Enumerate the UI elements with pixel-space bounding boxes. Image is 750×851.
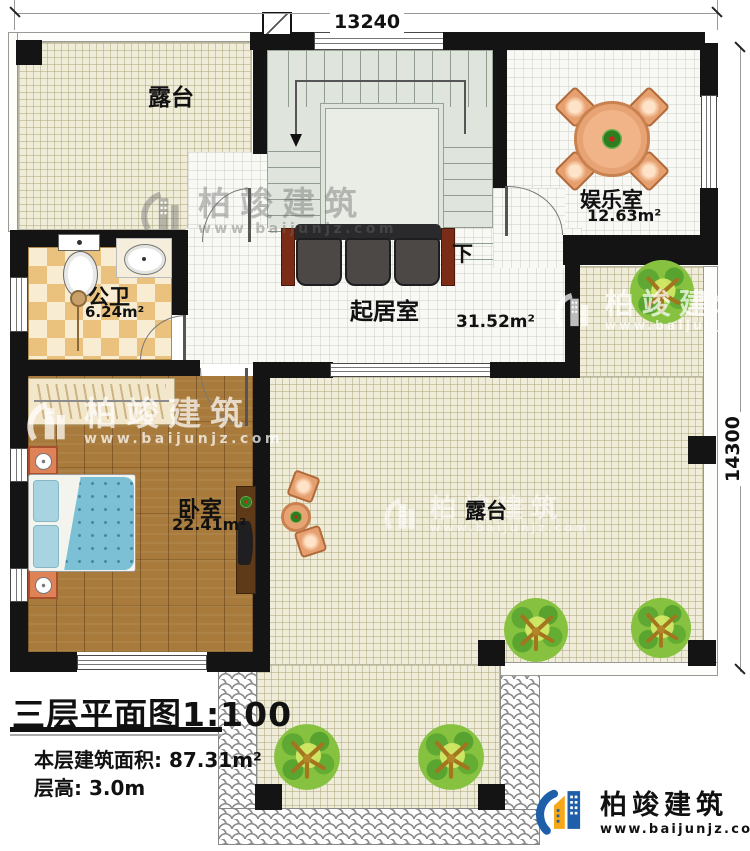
tree-icon bbox=[628, 258, 696, 326]
closet-rod bbox=[34, 400, 169, 402]
stair-guide-line bbox=[295, 80, 297, 134]
bed-pillow bbox=[33, 525, 59, 568]
bed-pillow bbox=[33, 480, 59, 522]
area-bedroom: 22.41m² bbox=[172, 515, 246, 534]
stair-risers-top bbox=[288, 51, 493, 107]
dimension-top-value: 13240 bbox=[330, 11, 404, 33]
label-terrace-top-left: 露台 bbox=[148, 78, 194, 112]
wall-bathroom-bottom bbox=[10, 360, 200, 376]
window-bedroom-bottom bbox=[77, 655, 207, 670]
nightstand bbox=[28, 570, 58, 599]
window-living-slider bbox=[330, 363, 492, 377]
sofa-cushion bbox=[394, 238, 440, 286]
door-leaf-entertainment bbox=[505, 186, 508, 236]
nightstand bbox=[28, 446, 58, 475]
window-entertainment-right bbox=[701, 95, 717, 190]
window-bathroom-left bbox=[10, 277, 28, 332]
wall-right-mid bbox=[700, 188, 718, 238]
wall-bedroom-left-a bbox=[10, 374, 28, 448]
company-logo: 柏竣建筑 www.baijunjz.com bbox=[536, 782, 750, 838]
railing-terrace-bottom bbox=[500, 662, 718, 676]
railing-terrace-right bbox=[703, 266, 718, 672]
railing-terrace-top bbox=[8, 32, 252, 42]
floor-plan: 柏竣建筑 www.baijunjz.com 柏竣建筑 www.baijunjz.… bbox=[0, 0, 750, 851]
window-bedroom-left-2 bbox=[10, 568, 28, 602]
tree-icon bbox=[628, 596, 694, 660]
sofa-side-table bbox=[281, 228, 295, 286]
door-leaf-terrace bbox=[248, 188, 251, 242]
area-bathroom: 6.24m² bbox=[85, 303, 144, 321]
sofa-cushion bbox=[345, 238, 391, 286]
floor-area-text: 本层建筑面积: 87.31m² bbox=[34, 744, 262, 773]
wall-right-upper bbox=[700, 43, 718, 97]
wall-bathroom-left-a bbox=[10, 247, 28, 277]
wall-bedroom-bottom-a bbox=[10, 652, 77, 672]
label-living: 起居室 bbox=[350, 292, 419, 326]
column bbox=[478, 640, 505, 666]
roof-tile-strip-right bbox=[500, 668, 540, 810]
dimension-right-value: 14300 bbox=[722, 412, 744, 486]
stair-guide-line bbox=[296, 80, 466, 82]
column bbox=[688, 436, 716, 464]
area-entertainment: 12.63m² bbox=[587, 206, 661, 225]
company-name: 柏竣建筑 bbox=[600, 783, 750, 822]
bed-sheet-fold bbox=[60, 477, 92, 570]
table-plant-icon bbox=[290, 511, 302, 523]
stair-landing bbox=[320, 103, 444, 235]
company-logo-icon bbox=[536, 782, 590, 838]
wall-living-terrace-divider bbox=[565, 265, 580, 378]
door-leaf-bedroom bbox=[245, 368, 248, 426]
column bbox=[16, 40, 42, 65]
stair-risers-left bbox=[268, 146, 320, 232]
wall-living-bottom-left bbox=[253, 362, 333, 378]
wall-top-right bbox=[443, 32, 705, 50]
label-stairs-down: 下 bbox=[452, 238, 473, 268]
floor-drain-stem bbox=[77, 307, 79, 351]
stair-down-arrow-icon bbox=[290, 134, 302, 147]
toilet-button bbox=[77, 240, 82, 245]
door-leaf-bathroom bbox=[183, 315, 186, 360]
dimension-line-right bbox=[740, 48, 741, 672]
wall-bedroom-left-b bbox=[10, 482, 28, 568]
company-website: www.baijunjz.com bbox=[600, 822, 750, 837]
dimension-tick bbox=[9, 6, 20, 17]
sink-drain bbox=[142, 257, 146, 261]
title-underline-thin bbox=[10, 734, 222, 736]
table-plant-icon bbox=[602, 129, 622, 149]
sofa-cushion bbox=[296, 238, 342, 286]
wall-entertainment-left bbox=[493, 50, 507, 188]
desk-plant-icon bbox=[240, 496, 252, 508]
tree-icon bbox=[502, 596, 570, 664]
tree-icon bbox=[416, 722, 486, 792]
title-underline bbox=[10, 727, 222, 732]
area-living: 31.52m² bbox=[456, 312, 535, 332]
wall-bathroom-right bbox=[172, 247, 188, 315]
chimney-box bbox=[262, 12, 292, 36]
label-terrace-main: 露台 bbox=[465, 495, 507, 525]
floor-height-text: 层高: 3.0m bbox=[34, 772, 145, 801]
dimension-ext-line bbox=[14, 0, 15, 30]
window-bedroom-left-1 bbox=[10, 448, 28, 482]
window-top bbox=[314, 32, 444, 50]
wall-stairwell-left bbox=[253, 32, 267, 154]
roof-tile-strip-bottom bbox=[218, 808, 540, 845]
stair-guide-line bbox=[464, 80, 466, 134]
